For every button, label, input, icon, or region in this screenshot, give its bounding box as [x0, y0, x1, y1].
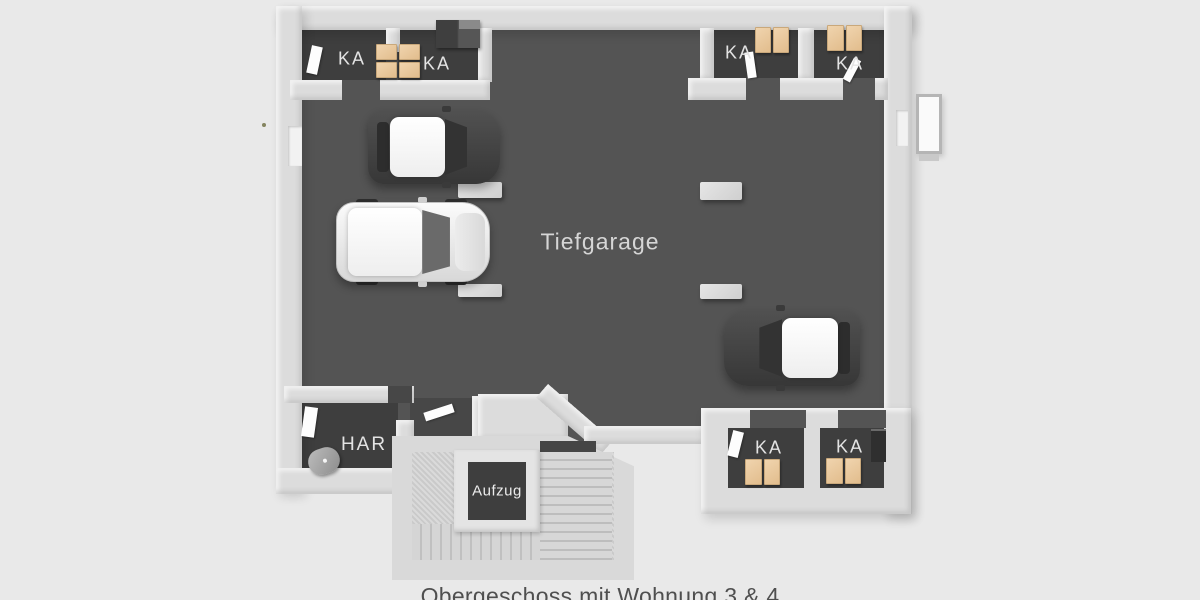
box [764, 459, 781, 485]
outer-wall-top [276, 6, 912, 30]
electric-panel-br [871, 429, 886, 462]
box [826, 458, 843, 484]
parking-divider-3 [458, 284, 502, 297]
car-white-middle [336, 202, 490, 282]
technical-room-label: HAR [341, 434, 387, 456]
stairs-right [540, 452, 612, 560]
box-stack-tr2 [827, 25, 862, 51]
wall-left-tr [700, 28, 714, 80]
storage-label-5: KA [755, 438, 783, 459]
car-dark-bottom-right [724, 310, 860, 386]
car-rear-window [377, 122, 389, 172]
wall-divider-tr [798, 28, 814, 80]
box [755, 27, 771, 53]
box [399, 62, 420, 78]
box [745, 459, 762, 485]
storage-label-4: KA [836, 54, 864, 75]
box [399, 44, 420, 60]
stair-landing-opening [540, 441, 596, 452]
box [376, 62, 397, 78]
garage-label: Tiefgarage [540, 229, 659, 256]
box-stack-tr1 [755, 27, 789, 53]
car-mirror [418, 281, 427, 287]
car-rear-window [838, 322, 850, 374]
box [845, 458, 862, 484]
car-mirror [776, 305, 785, 311]
box-stack-br1 [745, 459, 780, 485]
storage-label-6: KA [836, 437, 864, 458]
exterior-lightwell [916, 94, 942, 154]
tech-unit-tl [436, 20, 480, 48]
storage-label-2: KA [423, 54, 451, 75]
parking-divider-2 [700, 182, 742, 200]
floor-caption: Obergeschoss mit Wohnung 3 & 4 [421, 583, 780, 600]
parking-divider-4 [700, 284, 742, 299]
car-windshield [422, 210, 450, 274]
door-opening-tr1 [746, 78, 780, 100]
wall-bottom-tl [290, 80, 490, 100]
door-opening-br1 [750, 410, 806, 428]
box [376, 44, 397, 60]
box [827, 25, 844, 51]
car-mirror [442, 106, 451, 112]
car-windshield [759, 319, 782, 377]
storage-label-3: KA [725, 43, 753, 64]
car-dark-top-left [368, 110, 500, 184]
parking-divider-1 [458, 182, 502, 198]
box [773, 27, 789, 53]
bottom-mid-wall [584, 426, 706, 444]
wall-speck [262, 123, 266, 127]
right-wall-niche [896, 110, 908, 146]
wall-end-tl [478, 28, 492, 82]
elevator-label: Aufzug [472, 483, 522, 500]
car-mirror [442, 182, 451, 188]
har-door-opening [388, 386, 412, 403]
car-roof [782, 318, 838, 379]
car-mirror [776, 385, 785, 391]
car-roof [348, 208, 422, 275]
car-mirror [418, 197, 427, 203]
car-roof [390, 117, 444, 176]
storage-label-1: KA [338, 49, 366, 70]
box [846, 25, 863, 51]
door-opening-br2 [838, 410, 886, 428]
outer-wall-left [276, 6, 302, 492]
box-stack-br2 [826, 458, 861, 484]
left-wall-niche [288, 126, 302, 166]
exterior-lightwell-base [919, 154, 939, 161]
tech-unit-top [459, 20, 480, 29]
box-stack-tl [376, 44, 420, 78]
car-hood [455, 213, 486, 271]
floorplan-canvas: Aufzug [0, 0, 1200, 600]
door-opening-tl [342, 80, 380, 100]
car-windshield [445, 119, 467, 175]
